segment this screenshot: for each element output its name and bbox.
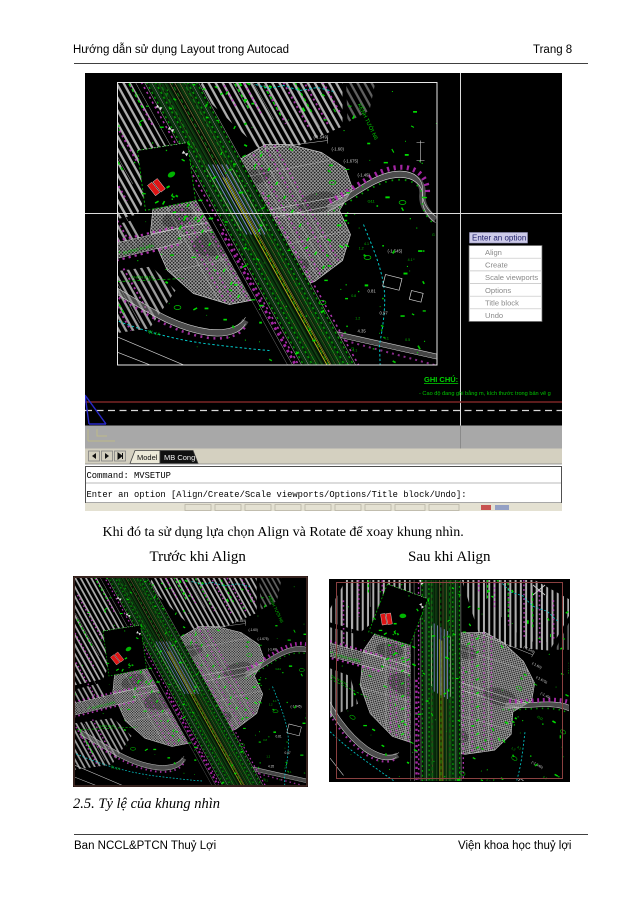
svg-text:Title block: Title block [485, 299, 519, 308]
svg-text:Create: Create [485, 261, 508, 270]
svg-text:GHI CHÚ:: GHI CHÚ: [424, 375, 458, 384]
svg-text:Enter an option: Enter an option [472, 234, 526, 243]
svg-text:Command: MVSETUP: Command: MVSETUP [87, 471, 171, 481]
svg-text:- Cao độ đang ghi bằng m, kích: - Cao độ đang ghi bằng m, kích thước tro… [419, 390, 551, 397]
svg-text:Undo: Undo [485, 311, 503, 320]
svg-text:MB Cong: MB Cong [164, 453, 195, 462]
svg-text:Scale viewports: Scale viewports [485, 273, 538, 282]
svg-text:Options: Options [485, 286, 511, 295]
svg-text:Enter an option [Align/Create/: Enter an option [Align/Create/Scale view… [87, 490, 467, 500]
svg-text:Model: Model [137, 453, 158, 462]
svg-text:Align: Align [485, 248, 502, 257]
